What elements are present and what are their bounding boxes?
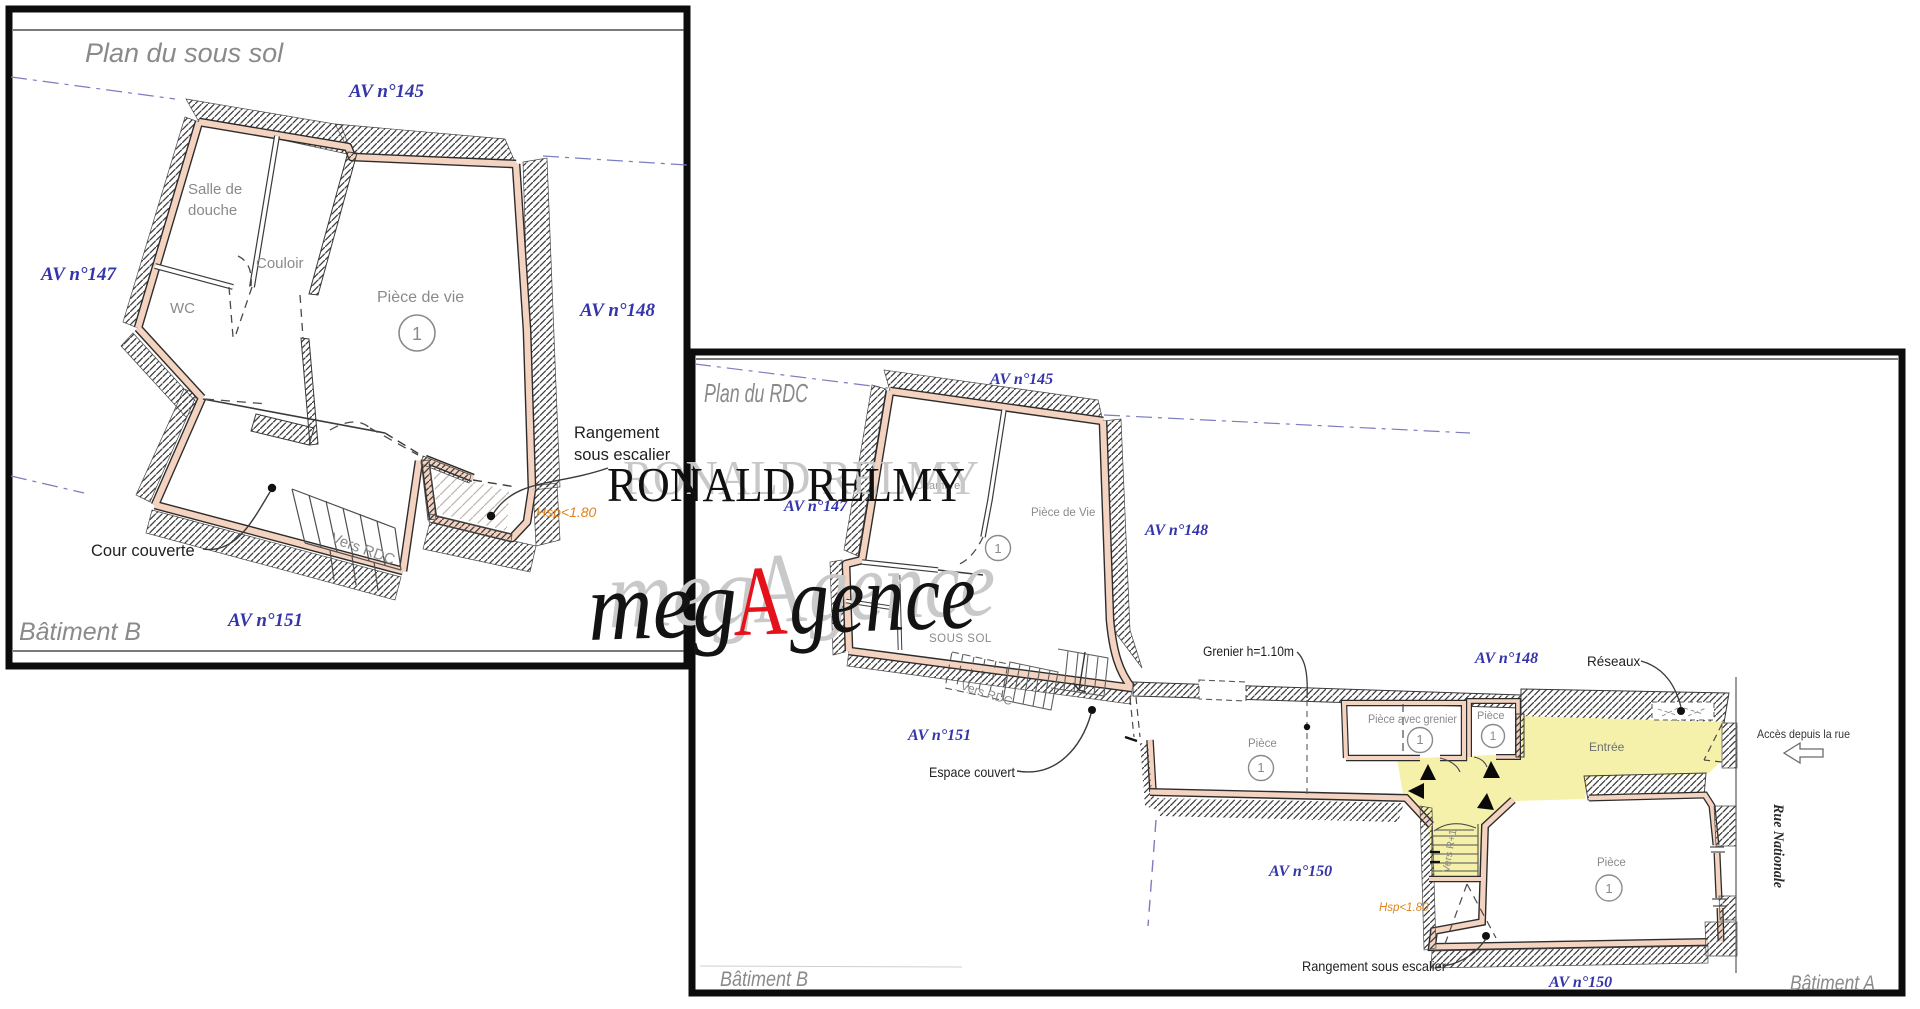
svg-text:WC: WC <box>170 300 195 317</box>
svg-text:AV n°151: AV n°151 <box>907 727 971 744</box>
svg-text:A: A <box>731 545 789 658</box>
svg-text:Plan du RDC: Plan du RDC <box>704 378 808 408</box>
svg-text:Pièce: Pièce <box>1248 738 1277 750</box>
svg-text:AV n°150: AV n°150 <box>1548 974 1612 991</box>
svg-text:Pièce de vie: Pièce de vie <box>377 289 464 306</box>
svg-text:Pièce de Vie: Pièce de Vie <box>1031 507 1095 519</box>
svg-text:1: 1 <box>1605 881 1612 896</box>
svg-text:douche: douche <box>188 202 237 219</box>
svg-text:1: 1 <box>412 324 422 344</box>
svg-text:Rangement sous escalier: Rangement sous escalier <box>1302 958 1446 974</box>
svg-text:Grenier h=1.10m: Grenier h=1.10m <box>1203 644 1294 659</box>
svg-text:AV n°151: AV n°151 <box>227 610 303 631</box>
svg-text:Entrée: Entrée <box>1589 740 1625 754</box>
svg-text:Bâtiment B: Bâtiment B <box>720 968 808 991</box>
svg-text:Salle de: Salle de <box>188 181 242 198</box>
svg-text:Couloir: Couloir <box>256 255 304 272</box>
svg-text:AV n°148: AV n°148 <box>1474 650 1538 667</box>
svg-text:AV n°148: AV n°148 <box>579 300 656 321</box>
svg-text:Cour couverte: Cour couverte <box>91 542 195 560</box>
svg-text:1: 1 <box>1490 729 1497 743</box>
svg-text:AV n°150: AV n°150 <box>1268 863 1332 880</box>
svg-text:Pièce: Pièce <box>1477 710 1505 722</box>
svg-text:1: 1 <box>1257 760 1264 775</box>
svg-text:Hsp<1.80: Hsp<1.80 <box>1379 902 1429 914</box>
svg-text:Réseaux: Réseaux <box>1587 654 1641 669</box>
svg-text:Bâtiment B: Bâtiment B <box>19 618 141 646</box>
svg-text:AV n°145: AV n°145 <box>348 81 425 102</box>
svg-text:1: 1 <box>1416 732 1423 747</box>
svg-text:AV n°147: AV n°147 <box>40 264 118 285</box>
svg-text:Rangement: Rangement <box>574 424 660 442</box>
svg-text:Bâtiment A: Bâtiment A <box>1790 972 1875 995</box>
svg-text:Hsp<1.80: Hsp<1.80 <box>536 504 597 520</box>
svg-text:Espace couvert: Espace couvert <box>929 764 1015 780</box>
svg-text:gence: gence <box>787 541 977 654</box>
svg-text:RONALD RELMY: RONALD RELMY <box>607 457 965 512</box>
svg-text:Pièce avec grenier: Pièce avec grenier <box>1368 714 1457 726</box>
svg-text:1: 1 <box>994 541 1001 556</box>
svg-text:meg: meg <box>586 549 738 661</box>
svg-text:AV n°145: AV n°145 <box>989 371 1053 388</box>
svg-text:Accès depuis la rue: Accès depuis la rue <box>1757 727 1850 741</box>
svg-text:AV n°148: AV n°148 <box>1144 522 1208 539</box>
svg-text:Rue Nationale: Rue Nationale <box>1770 803 1786 888</box>
svg-text:Plan du sous sol: Plan du sous sol <box>85 38 284 68</box>
svg-text:Pièce: Pièce <box>1597 857 1626 869</box>
